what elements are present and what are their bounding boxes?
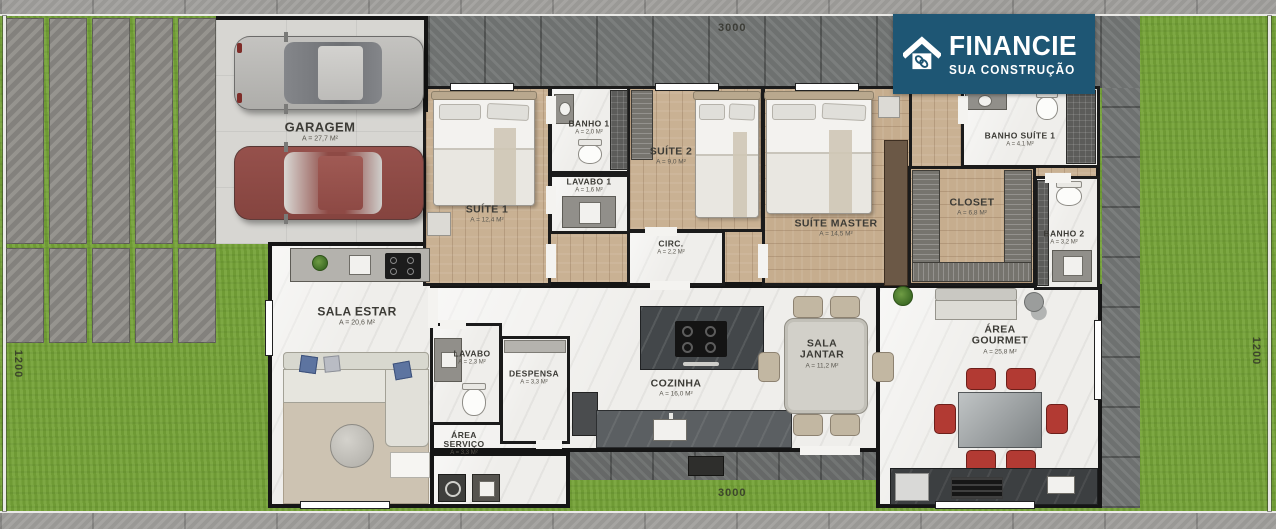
garage-wall: [424, 16, 428, 112]
car-roof: [318, 156, 363, 209]
room-name: SUÍTE 1: [466, 204, 508, 215]
room-label-sala-jantar: SALA JANTAR A = 11,2 M²: [791, 339, 853, 370]
dining-chair: [758, 352, 780, 382]
hallway-wardrobe-panel: [884, 140, 908, 286]
door-opening: [546, 186, 556, 214]
room-name: ÁREA SERVIÇO: [432, 431, 496, 449]
dining-chair: [830, 414, 860, 436]
toilet-lavabo: [462, 388, 486, 416]
room-name: SUÍTE 2: [650, 146, 692, 157]
room-area: A = 27,7 M²: [285, 136, 356, 144]
nightstand: [878, 96, 900, 118]
kitchen-wall-counter: [290, 248, 430, 282]
car-taillight: [237, 93, 242, 103]
shower-banho-suite-1: [1066, 90, 1096, 164]
window: [795, 83, 859, 91]
room-name: DESPENSA: [509, 370, 559, 379]
room-name: CIRC.: [657, 240, 685, 249]
dining-chair: [830, 296, 860, 318]
dimension-left: 1200: [12, 350, 24, 378]
nightstand: [427, 212, 451, 236]
room-label-circ: CIRC. A = 2,2 M²: [657, 240, 685, 257]
window: [655, 83, 719, 91]
window: [450, 83, 514, 91]
floor-plan: 3000 3000 1200 1200: [0, 0, 1276, 529]
room-name: LAVABO: [453, 350, 490, 359]
house-chain-icon: [903, 27, 941, 81]
plant: [893, 286, 913, 306]
washer: [438, 474, 466, 502]
room-area: A = 14,5 M²: [795, 231, 878, 238]
sliding-door: [300, 501, 390, 509]
burner: [705, 326, 716, 337]
kitchen-bottom-counter: [596, 410, 792, 448]
car-mirror: [284, 142, 288, 152]
shower-banho-1: [610, 90, 628, 170]
room-area: A = 2,3 M²: [453, 360, 490, 366]
garden-paver-strip: [135, 18, 173, 244]
door-opening: [546, 96, 556, 124]
washer-door: [445, 481, 461, 497]
sliding-door: [935, 501, 1035, 509]
room-name: CLOSET: [950, 197, 995, 208]
room-label-area-servico: ÁREA SERVIÇO A = 3,3 M²: [432, 431, 496, 457]
cooktop: [385, 253, 421, 279]
coffee-table: [390, 452, 430, 478]
wardrobe-closet-left: [912, 170, 940, 266]
room-area: A = 4,1 M²: [970, 142, 1070, 148]
toilet-banho-2: [1056, 186, 1082, 206]
logo-title: FINANCIE: [949, 32, 1077, 60]
room-label-lavabo: LAVABO A = 2,3 M²: [453, 350, 490, 367]
dimension-top: 3000: [718, 22, 746, 34]
bed-throw: [733, 132, 747, 217]
door-opening: [546, 244, 556, 278]
room-area: A = 12,4 M²: [466, 217, 508, 224]
bed-headboard: [764, 91, 874, 100]
room-label-suite-1: SUÍTE 1 A = 12,4 M²: [466, 204, 508, 223]
garden-paver-strip: [6, 18, 44, 244]
room-area: A = 16,0 M²: [651, 391, 702, 398]
door-opening: [536, 440, 562, 449]
door-opening: [1045, 173, 1071, 183]
sidewalk-bottom: [0, 511, 1276, 529]
sink-basin: [579, 202, 601, 224]
room-area: A = 9,0 M²: [650, 159, 692, 166]
dining-chair: [872, 352, 894, 382]
sofa-pillow-blue: [299, 355, 318, 374]
bed-pillow: [487, 103, 530, 121]
room-area: A = 3,3 M²: [432, 450, 496, 456]
sink-basin: [559, 102, 571, 116]
room-label-suite-master: SUÍTE MASTER A = 14,5 M²: [795, 218, 878, 237]
room-label-banho-suite-1: BANHO SUÍTE 1 A = 4,1 M²: [970, 132, 1070, 149]
room-name: BANHO SUÍTE 1: [970, 132, 1070, 141]
room-name: LAVABO 1: [567, 178, 612, 187]
room-label-despensa: DESPENSA A = 3,3 M²: [509, 370, 559, 387]
bed-throw: [829, 130, 852, 213]
car-taillight: [237, 43, 242, 53]
car-red: [234, 146, 424, 220]
doormat: [688, 456, 724, 476]
burner: [682, 326, 693, 337]
door-opening: [958, 96, 968, 124]
garden-paver-strip: [49, 248, 87, 343]
toilet-banho-1: [578, 144, 602, 164]
room-area: A = 6,8 M²: [950, 210, 995, 217]
bed-blanket: [767, 152, 871, 213]
door-opening: [645, 227, 677, 236]
sofa-pillow-blue: [393, 361, 413, 381]
car-mirror: [284, 214, 288, 224]
dimension-right: 1200: [1250, 337, 1262, 365]
toilet-tank: [578, 139, 602, 146]
bed-suite-1: [433, 94, 535, 206]
bed-blanket: [434, 148, 534, 205]
door-opening: [650, 281, 690, 290]
garden-paver-strip: [178, 248, 216, 343]
room-name: GARAGEM: [285, 121, 356, 135]
room-label-banho-1: BANHO 1 A = 2,0 M²: [568, 120, 609, 137]
garden-paver-strip: [92, 18, 130, 244]
bed-headboard: [431, 91, 537, 100]
door-opening: [800, 446, 860, 455]
room-label-closet: CLOSET A = 6,8 M²: [950, 197, 995, 216]
room-label-area-gourmet: ÁREA GOURMET A = 25,8 M²: [957, 325, 1043, 356]
sink-counter-banho-2: [1052, 250, 1092, 282]
bed-pillow: [728, 103, 755, 120]
grill: [951, 477, 1003, 499]
faucet: [669, 413, 673, 419]
car-silver: [234, 36, 424, 110]
door-opening: [758, 244, 768, 278]
room-label-garagem: GARAGEM A = 27,7 M²: [285, 121, 356, 144]
dining-chair: [793, 296, 823, 318]
room-name: ÁREA GOURMET: [957, 325, 1043, 348]
room-label-sala-estar: SALA ESTAR A = 20,6 M²: [317, 305, 396, 327]
car-roof: [318, 46, 363, 99]
room-area: A = 2,0 M²: [568, 130, 609, 136]
island-controls: [683, 362, 719, 366]
plant: [312, 255, 328, 271]
fridge: [572, 392, 598, 436]
sink-basin: [349, 255, 371, 275]
walkway-right: [1102, 88, 1140, 508]
burner: [407, 268, 414, 275]
sink-basin: [1047, 476, 1075, 494]
burner: [705, 342, 716, 353]
gourmet-sofa-seat: [935, 300, 1017, 320]
room-area: A = 3,2 M²: [1043, 240, 1084, 246]
garden-paver-strip: [49, 18, 87, 244]
door-opening: [428, 288, 438, 328]
room-area: A = 3,3 M²: [509, 380, 559, 386]
sofa-pillow-gray: [323, 355, 341, 373]
bed-blanket: [696, 154, 758, 217]
sofa-chaise: [385, 369, 429, 447]
cooktop: [675, 321, 727, 357]
bed-suite-2: [695, 94, 759, 218]
car-mirror: [284, 104, 288, 114]
room-area: A = 25,8 M²: [957, 348, 1043, 355]
brand-logo: FINANCIE SUA CONSTRUÇÃO: [893, 14, 1095, 94]
room-name: BANHO 2: [1043, 230, 1084, 239]
toilet-tank: [462, 383, 486, 390]
wardrobe-closet-right: [1004, 170, 1032, 266]
toilet-banho-suite-1: [1036, 96, 1058, 120]
bed-throw: [494, 128, 516, 205]
kitchen-island: [640, 306, 764, 370]
pouf: [330, 424, 374, 468]
garden-paver-strip: [135, 248, 173, 343]
mini-fridge: [895, 473, 929, 501]
room-name: BANHO 1: [568, 120, 609, 129]
car-mirror: [284, 32, 288, 42]
bed-pillow: [772, 104, 816, 120]
room-name: SALA JANTAR: [791, 339, 853, 362]
window: [265, 300, 273, 356]
gourmet-chair-red: [934, 404, 956, 434]
garden-paver-strip: [92, 248, 130, 343]
burner: [390, 268, 397, 275]
room-label-lavabo-1: LAVABO 1 A = 1,6 M²: [567, 178, 612, 195]
room-label-cozinha: COZINHA A = 16,0 M²: [651, 378, 702, 397]
garden-paver-strip: [6, 248, 44, 343]
door-opening: [440, 320, 466, 329]
room-label-suite-2: SUÍTE 2 A = 9,0 M²: [650, 146, 692, 165]
sink-basin: [479, 481, 495, 497]
room-area: A = 11,2 M²: [791, 362, 853, 369]
sink-counter-lavabo-1: [562, 196, 616, 228]
grill-counter: [890, 468, 1098, 505]
pantry-shelf: [504, 340, 566, 353]
wardrobe-closet-bottom: [912, 262, 1032, 282]
room-area: A = 1,6 M²: [567, 188, 612, 194]
logo-subtitle: SUA CONSTRUÇÃO: [949, 63, 1077, 77]
dining-chair: [793, 414, 823, 436]
room-name: SALA ESTAR: [317, 305, 396, 318]
room-area: A = 2,2 M²: [657, 250, 685, 256]
burner: [682, 342, 693, 353]
window: [1094, 320, 1102, 400]
room-name: COZINHA: [651, 378, 702, 389]
sink-basin: [978, 95, 992, 107]
room-area: A = 20,6 M²: [317, 319, 396, 327]
sink-basin: [653, 419, 687, 441]
gourmet-table: [958, 392, 1042, 448]
dimension-bottom: 3000: [718, 487, 746, 499]
lot-line-right: [1268, 16, 1271, 511]
gourmet-chair-red: [1046, 404, 1068, 434]
bed-pillow: [699, 104, 725, 120]
sink-basin: [1063, 256, 1083, 276]
burner: [390, 257, 397, 264]
burner: [407, 257, 414, 264]
gourmet-chair-red: [966, 368, 996, 390]
room-label-banho-2: BANHO 2 A = 3,2 M²: [1043, 230, 1084, 247]
laundry-sink: [472, 474, 500, 502]
gourmet-chair-red: [1006, 368, 1036, 390]
garden-paver-strip: [178, 18, 216, 244]
bed-pillow: [439, 104, 481, 120]
logo-text: FINANCIE SUA CONSTRUÇÃO: [949, 32, 1077, 77]
room-name: SUÍTE MASTER: [795, 218, 878, 229]
bed-headboard: [693, 91, 761, 100]
bed-suite-master: [766, 94, 872, 214]
bed-pillow: [822, 103, 866, 121]
